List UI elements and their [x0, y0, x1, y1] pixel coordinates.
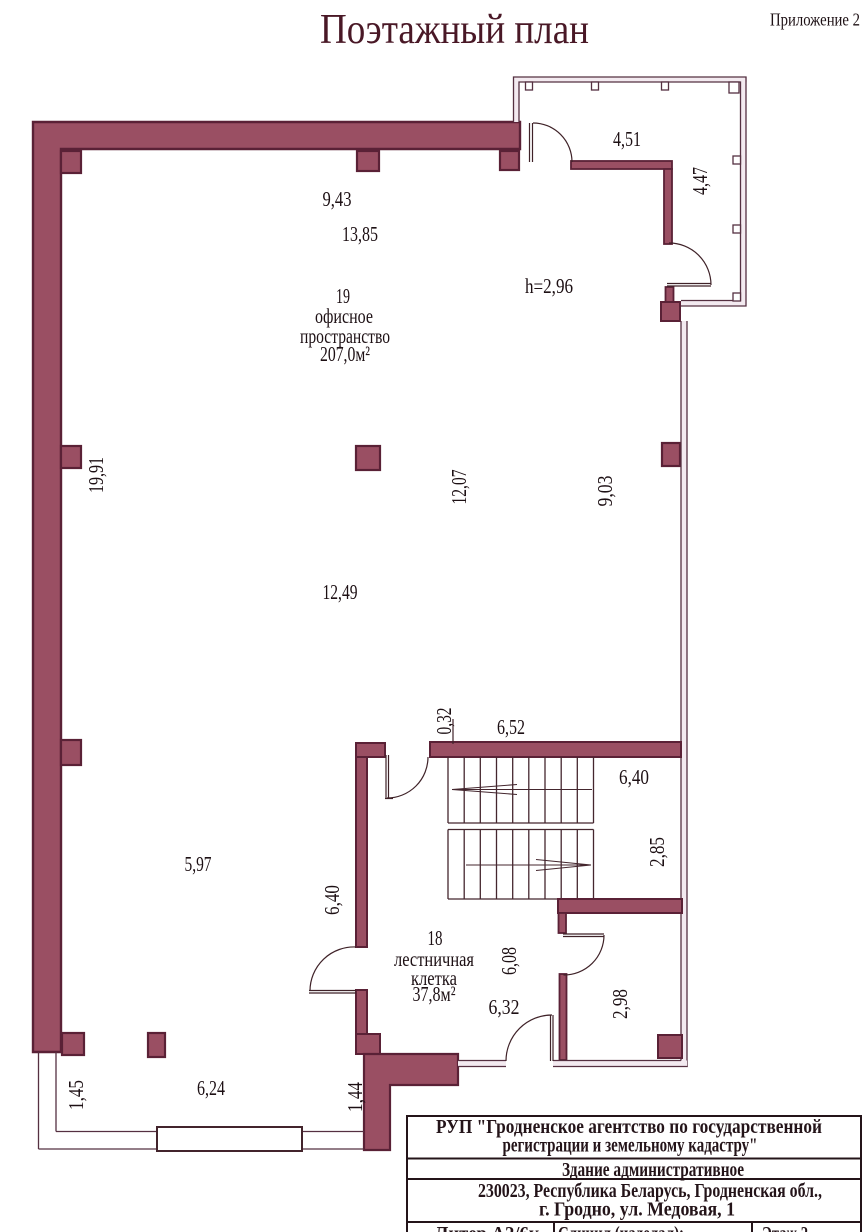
svg-text:г. Гродно, ул. Медовая, 1: г. Гродно, ул. Медовая, 1 [539, 1199, 735, 1221]
svg-text:6,32: 6,32 [489, 995, 520, 1019]
svg-text:регистрации и земельному када: регистрации и земельному кадастру" [503, 1135, 758, 1157]
svg-text:6,08: 6,08 [497, 947, 521, 975]
svg-text:Литер А2/6к: Литер А2/6к [435, 1223, 540, 1232]
svg-text:37,8м²: 37,8м² [413, 982, 456, 1006]
svg-text:19,91: 19,91 [84, 457, 108, 493]
svg-text:4,51: 4,51 [613, 127, 641, 151]
svg-text:6,24: 6,24 [197, 1076, 225, 1100]
svg-text:1,44: 1,44 [343, 1082, 367, 1112]
svg-text:2,85: 2,85 [645, 837, 669, 867]
svg-text:1,45: 1,45 [64, 1080, 88, 1110]
svg-text:12,49: 12,49 [323, 580, 358, 604]
svg-text:9,03: 9,03 [593, 476, 617, 507]
svg-text:h=2,96: h=2,96 [525, 274, 573, 298]
svg-text:9,43: 9,43 [323, 187, 352, 211]
svg-text:Сличил (наделал):: Сличил (наделал): [558, 1223, 684, 1232]
svg-text:Приложение 2: Приложение 2 [770, 10, 860, 30]
svg-text:6,40: 6,40 [619, 765, 649, 789]
svg-text:13,85: 13,85 [342, 222, 378, 246]
svg-text:Этаж 2: Этаж 2 [762, 1223, 808, 1232]
svg-text:Поэтажный план: Поэтажный план [320, 7, 589, 53]
svg-text:12,07: 12,07 [447, 470, 471, 505]
svg-text:Здание административное: Здание административное [562, 1159, 744, 1181]
svg-text:4,47: 4,47 [688, 167, 712, 195]
svg-text:2,98: 2,98 [608, 989, 632, 1019]
svg-text:6,52: 6,52 [497, 715, 525, 739]
svg-text:6,40: 6,40 [320, 885, 344, 915]
svg-text:5,97: 5,97 [185, 852, 212, 876]
svg-text:207,0м²: 207,0м² [320, 342, 370, 366]
